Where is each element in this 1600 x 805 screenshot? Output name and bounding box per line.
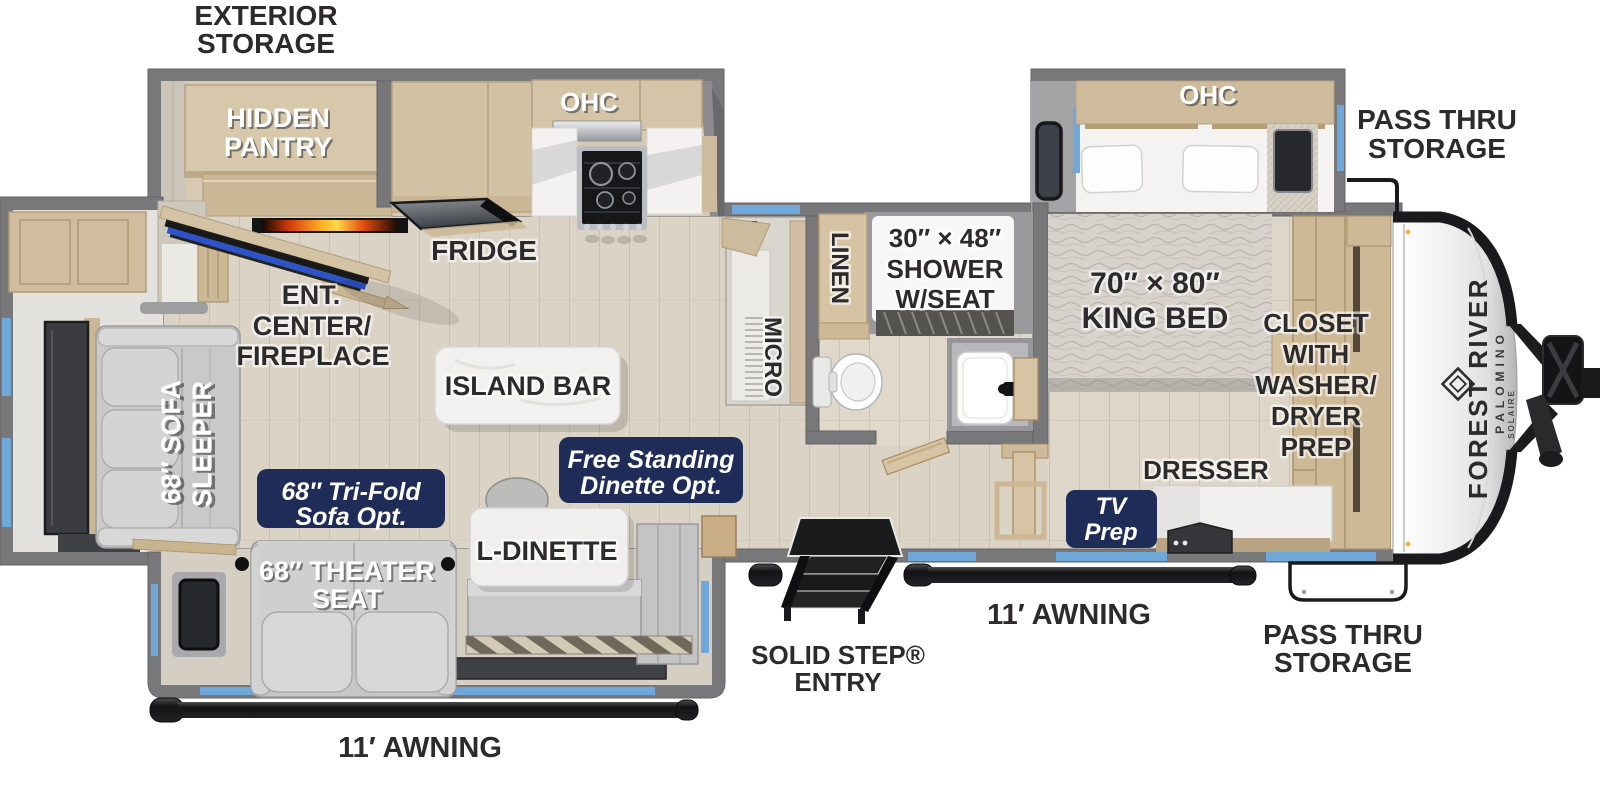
svg-text:68″ SOFA: 68″ SOFA: [156, 380, 186, 504]
svg-text:11′ AWNING: 11′ AWNING: [338, 732, 502, 764]
svg-text:WASHER/: WASHER/: [1255, 370, 1376, 400]
svg-text:Prep: Prep: [1084, 519, 1137, 546]
svg-text:PALOMINO: PALOMINO: [1493, 330, 1507, 434]
svg-text:STORAGE: STORAGE: [197, 28, 335, 59]
svg-text:MICRO: MICRO: [759, 317, 786, 397]
svg-text:PASS THRU: PASS THRU: [1357, 104, 1517, 135]
svg-text:KING BED: KING BED: [1082, 302, 1229, 335]
svg-text:SEAT: SEAT: [312, 584, 383, 614]
svg-text:L-DINETTE: L-DINETTE: [477, 536, 618, 566]
svg-text:SHOWER: SHOWER: [887, 254, 1004, 284]
svg-text:ISLAND BAR: ISLAND BAR: [445, 371, 612, 401]
svg-text:FOREST RIVER: FOREST RIVER: [1463, 277, 1493, 499]
svg-text:FIREPLACE: FIREPLACE: [236, 341, 389, 371]
svg-text:OHC: OHC: [560, 87, 618, 117]
svg-text:W/SEAT: W/SEAT: [895, 284, 994, 314]
svg-text:CLOSET: CLOSET: [1263, 308, 1369, 338]
svg-text:SOLID STEP®: SOLID STEP®: [751, 640, 925, 670]
svg-text:Sofa Opt.: Sofa Opt.: [295, 503, 406, 531]
svg-text:SLEEPER: SLEEPER: [187, 381, 217, 507]
svg-text:DRYER: DRYER: [1271, 401, 1361, 431]
svg-text:PASS THRU: PASS THRU: [1263, 619, 1423, 650]
svg-text:EXTERIOR: EXTERIOR: [194, 0, 337, 31]
svg-text:30″ × 48″: 30″ × 48″: [889, 223, 1001, 253]
svg-text:OHC: OHC: [1179, 80, 1237, 110]
svg-text:DRESSER: DRESSER: [1143, 455, 1269, 485]
svg-text:STORAGE: STORAGE: [1368, 133, 1506, 164]
svg-text:WITH: WITH: [1283, 339, 1349, 369]
svg-text:ENT.: ENT.: [282, 280, 341, 310]
svg-text:FRIDGE: FRIDGE: [431, 235, 537, 266]
svg-text:SOLAIRE: SOLAIRE: [1507, 389, 1516, 439]
svg-text:70″ × 80″: 70″ × 80″: [1090, 267, 1220, 300]
svg-text:TV: TV: [1096, 493, 1129, 520]
svg-text:STORAGE: STORAGE: [1274, 647, 1412, 678]
svg-text:11′ AWNING: 11′ AWNING: [987, 599, 1151, 631]
svg-text:ENTRY: ENTRY: [794, 667, 881, 697]
svg-text:68″ THEATER: 68″ THEATER: [259, 556, 435, 586]
svg-text:PANTRY: PANTRY: [224, 132, 332, 162]
svg-text:LINEN: LINEN: [826, 232, 853, 304]
svg-text:PREP: PREP: [1281, 432, 1352, 462]
svg-text:68″ Tri-Fold: 68″ Tri-Fold: [281, 478, 421, 506]
svg-text:Dinette Opt.: Dinette Opt.: [580, 472, 722, 500]
svg-text:CENTER/: CENTER/: [253, 311, 372, 341]
svg-text:Free Standing: Free Standing: [568, 446, 735, 474]
svg-text:HIDDEN: HIDDEN: [226, 103, 330, 133]
